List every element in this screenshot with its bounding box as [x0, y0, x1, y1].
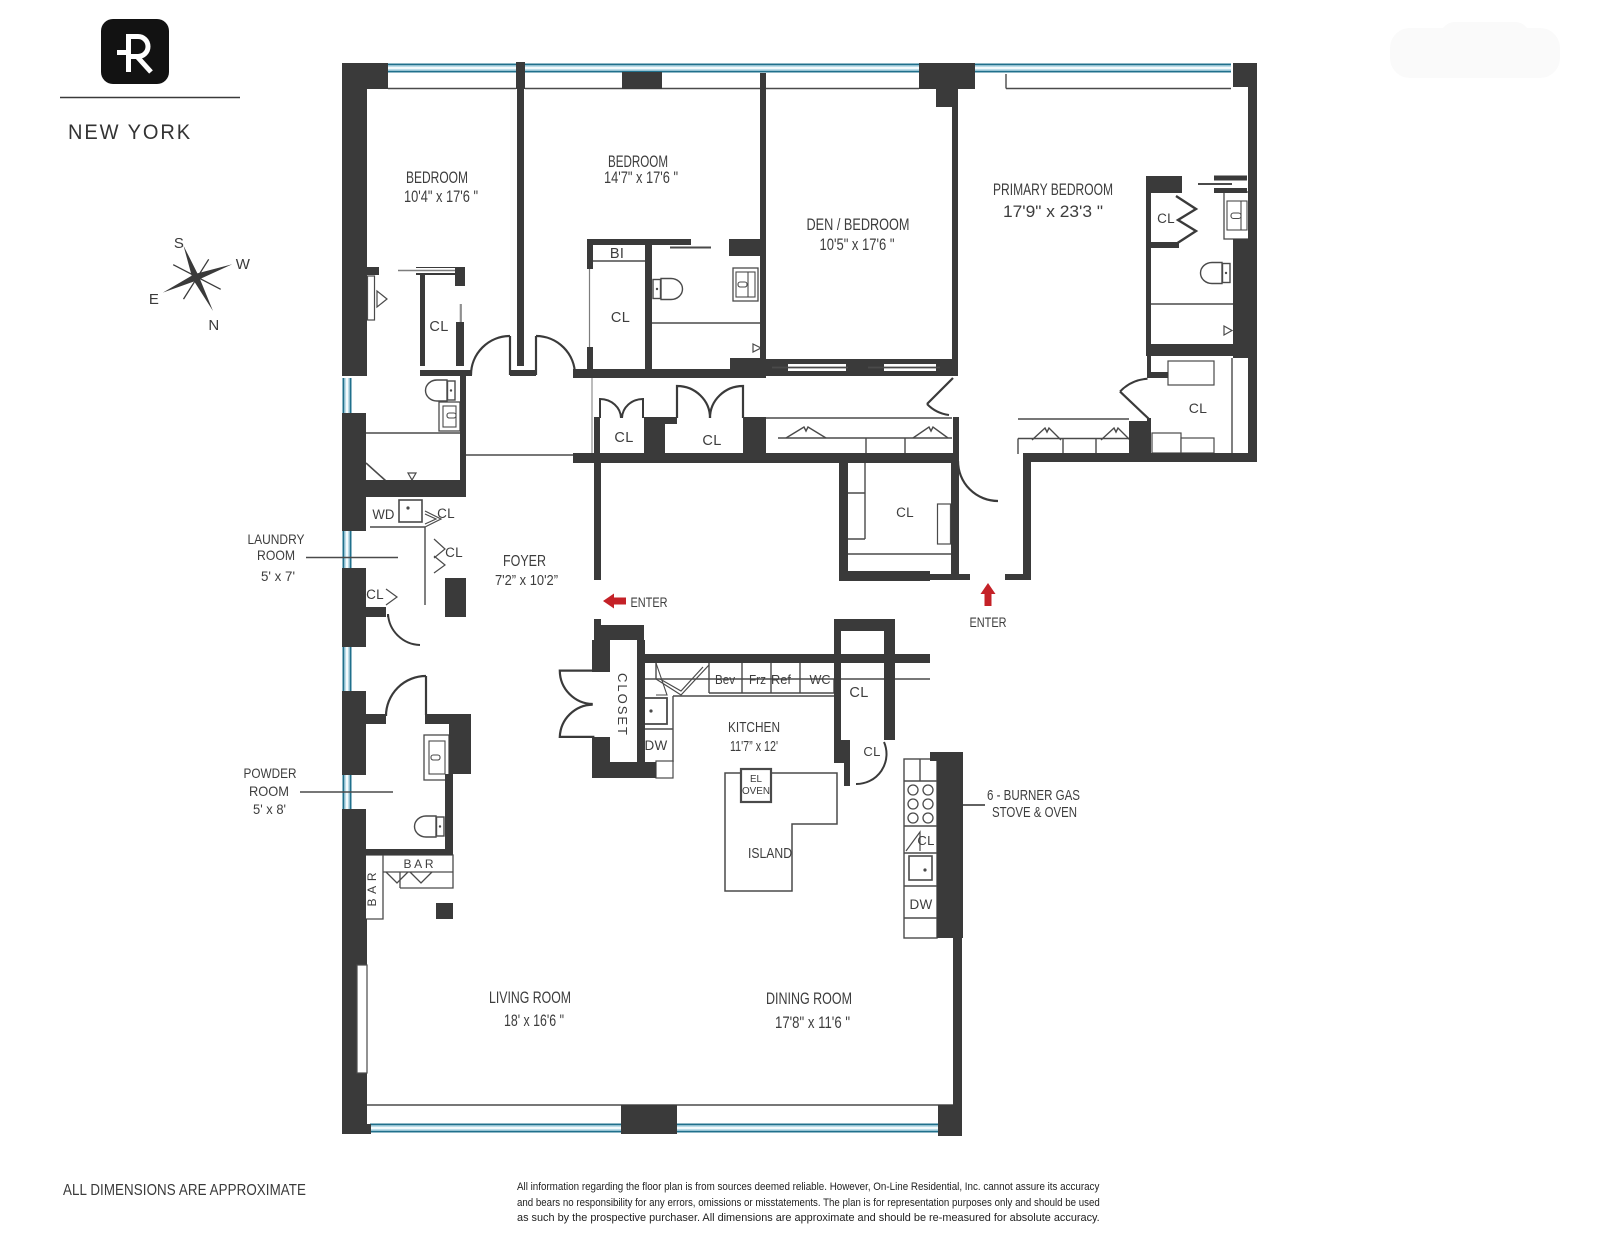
svg-text:CL: CL	[849, 685, 868, 701]
svg-text:OVEN: OVEN	[742, 785, 770, 797]
svg-text:DW: DW	[909, 897, 932, 912]
svg-text:5' x 8': 5' x 8'	[253, 801, 286, 817]
svg-text:6 - BURNER GAS: 6 - BURNER GAS	[987, 787, 1080, 804]
svg-text:CL: CL	[1189, 400, 1208, 416]
svg-text:Ref: Ref	[771, 673, 792, 687]
svg-text:W: W	[236, 256, 251, 273]
svg-text:CL: CL	[1157, 211, 1175, 226]
svg-text:PRIMARY BEDROOM: PRIMARY BEDROOM	[993, 181, 1113, 199]
svg-text:ROOM: ROOM	[257, 547, 295, 563]
svg-text:STOVE & OVEN: STOVE & OVEN	[992, 804, 1077, 821]
svg-text:7'2” x 10'2”: 7'2” x 10'2”	[495, 573, 558, 589]
svg-text:5' x 7': 5' x 7'	[261, 568, 295, 584]
svg-text:EL: EL	[750, 773, 762, 785]
svg-text:CL: CL	[611, 310, 630, 326]
svg-text:Frz: Frz	[749, 673, 766, 687]
svg-text:B A R: B A R	[404, 857, 434, 871]
svg-text:CL: CL	[429, 319, 448, 335]
svg-text:KITCHEN: KITCHEN	[728, 719, 780, 736]
svg-text:DW: DW	[644, 738, 667, 753]
svg-text:CL: CL	[437, 506, 455, 521]
svg-text:BEDROOM: BEDROOM	[406, 169, 468, 187]
svg-text:CLOSET: CLOSET	[615, 673, 630, 737]
svg-text:FOYER: FOYER	[503, 553, 546, 570]
svg-text:CL: CL	[445, 545, 463, 560]
svg-text:18' x 16'6 ": 18' x 16'6 "	[504, 1012, 564, 1030]
svg-text:17'9" x 23'3 ": 17'9" x 23'3 "	[1003, 203, 1103, 221]
svg-text:WC: WC	[810, 673, 831, 687]
svg-text:WD: WD	[372, 507, 394, 522]
svg-text:14'7" x 17'6 ": 14'7" x 17'6 "	[604, 169, 678, 187]
svg-text:CL: CL	[702, 433, 721, 449]
svg-text:B A R: B A R	[365, 871, 379, 906]
svg-text:ENTER: ENTER	[631, 595, 668, 610]
svg-text:BI: BI	[610, 246, 624, 262]
svg-text:17'8" x 11'6 ": 17'8" x 11'6 "	[775, 1014, 850, 1032]
svg-text:CL: CL	[917, 833, 934, 848]
svg-text:DEN / BEDROOM: DEN / BEDROOM	[807, 216, 910, 234]
svg-text:10'5" x 17'6 ": 10'5" x 17'6 "	[820, 236, 895, 254]
svg-text:CL: CL	[614, 430, 633, 446]
svg-text:11'7” x 12': 11'7” x 12'	[730, 738, 778, 755]
svg-text:CL: CL	[863, 744, 880, 759]
svg-text:N: N	[208, 317, 219, 334]
svg-text:Bev: Bev	[715, 673, 736, 687]
svg-text:LAUNDRY: LAUNDRY	[248, 531, 306, 547]
svg-text:ENTER: ENTER	[970, 615, 1007, 630]
svg-text:POWDER: POWDER	[244, 765, 297, 781]
svg-text:CL: CL	[896, 505, 914, 520]
svg-text:10'4" x 17'6 ": 10'4" x 17'6 "	[404, 188, 478, 206]
svg-text:ROOM: ROOM	[249, 783, 289, 799]
svg-text:CL: CL	[366, 587, 384, 602]
svg-text:NEW YORK: NEW YORK	[68, 121, 192, 144]
svg-text:DINING ROOM: DINING ROOM	[766, 990, 852, 1008]
svg-text:ISLAND: ISLAND	[748, 846, 792, 862]
svg-text:E: E	[149, 291, 159, 308]
svg-text:LIVING ROOM: LIVING ROOM	[489, 989, 571, 1007]
svg-text:S: S	[174, 235, 184, 252]
